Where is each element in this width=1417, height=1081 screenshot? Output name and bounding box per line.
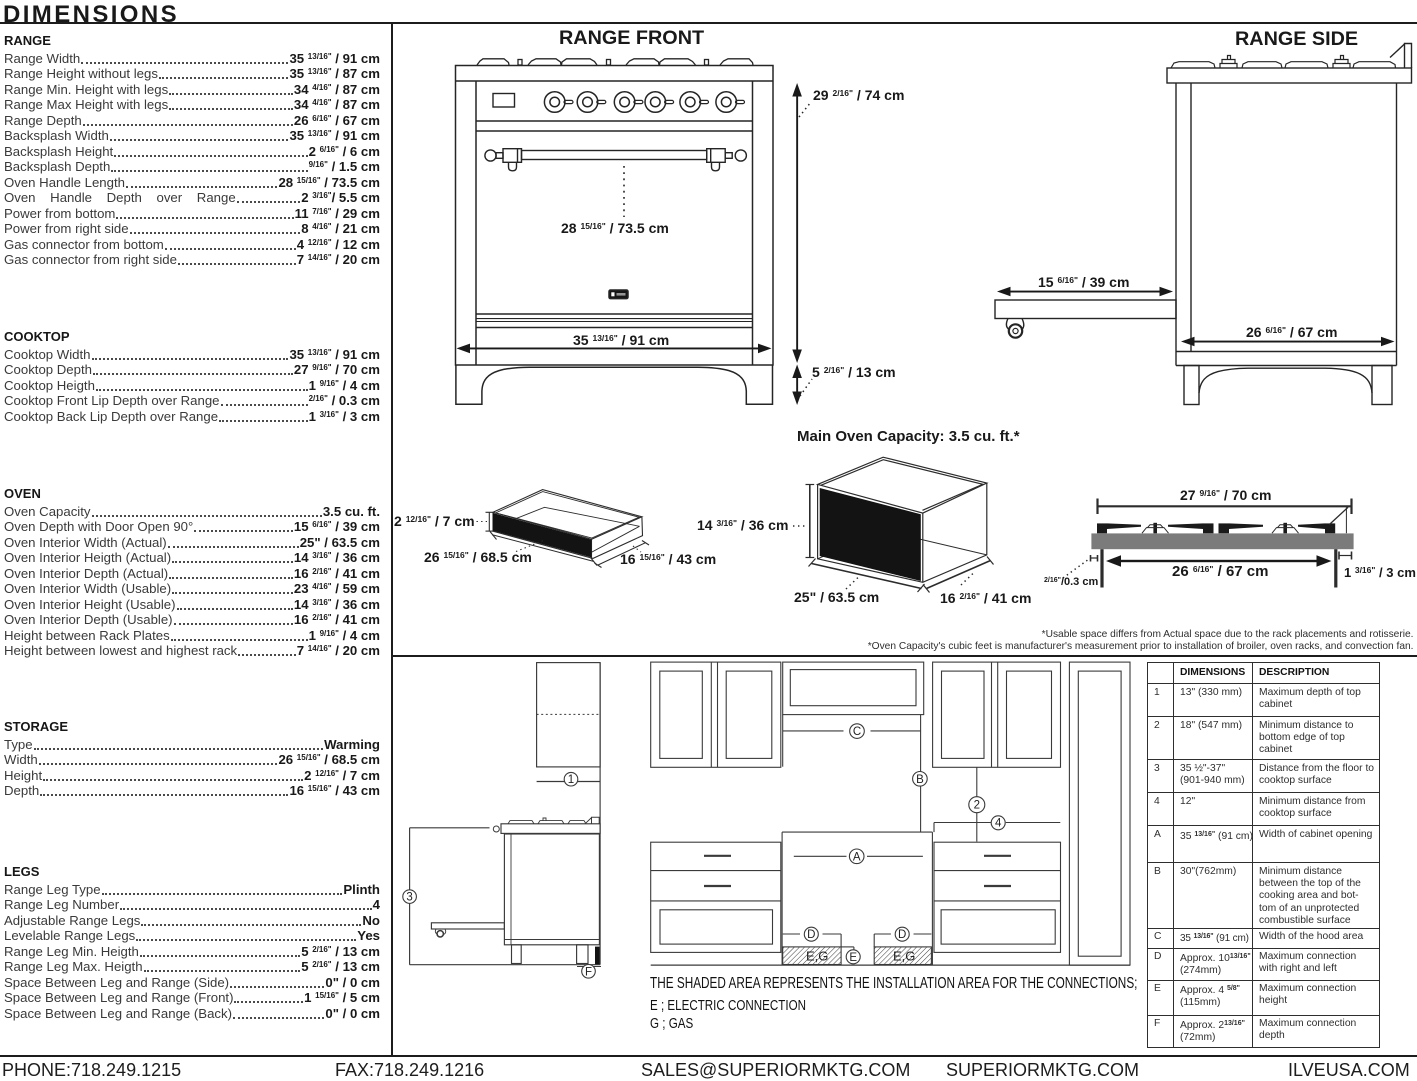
svg-text:1: 1 [568, 774, 574, 786]
svg-text:2: 2 [974, 800, 980, 812]
svg-text:C: C [853, 726, 861, 738]
svg-text:E: E [849, 952, 857, 964]
svg-text:3: 3 [406, 892, 412, 904]
svg-text:4: 4 [995, 818, 1002, 830]
svg-text:E,G: E,G [893, 949, 915, 964]
svg-text:D: D [898, 929, 906, 941]
svg-text:B: B [916, 774, 924, 786]
svg-text:A: A [853, 851, 861, 863]
svg-text:F: F [585, 966, 592, 978]
svg-text:E,G: E,G [806, 949, 828, 964]
svg-text:D: D [807, 929, 815, 941]
